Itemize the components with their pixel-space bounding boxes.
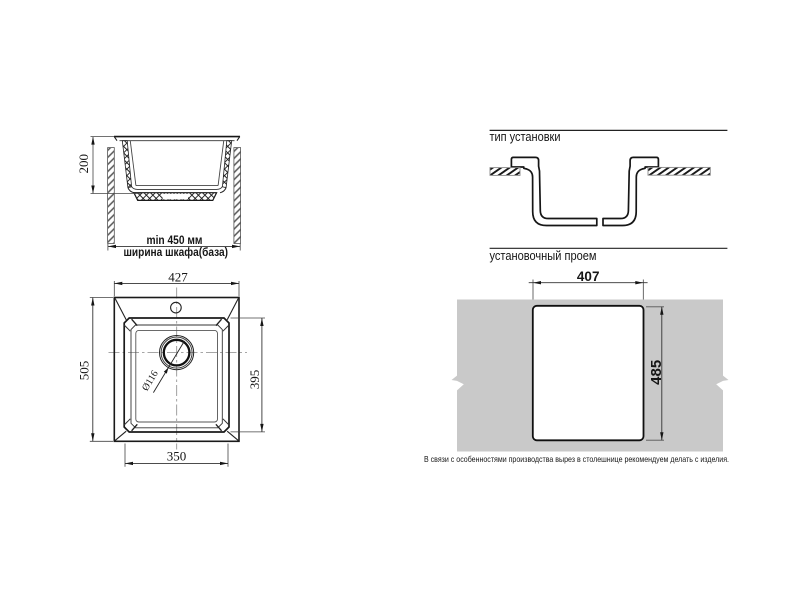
svg-text:200: 200 bbox=[76, 154, 91, 174]
svg-text:505: 505 bbox=[77, 361, 92, 381]
svg-text:427: 427 bbox=[168, 269, 188, 284]
svg-text:407: 407 bbox=[577, 269, 600, 284]
svg-text:350: 350 bbox=[167, 448, 187, 463]
svg-text:В связи с особенностями произв: В связи с особенностями производства выр… bbox=[424, 454, 729, 464]
svg-text:установочный проем: установочный проем bbox=[490, 248, 597, 263]
svg-text:485: 485 bbox=[648, 360, 665, 385]
svg-text:395: 395 bbox=[247, 370, 262, 390]
svg-text:тип установки: тип установки bbox=[490, 129, 561, 144]
svg-text:ширина шкафа(база): ширина шкафа(база) bbox=[124, 247, 229, 259]
svg-text:min 450 мм: min 450 мм bbox=[147, 235, 203, 247]
